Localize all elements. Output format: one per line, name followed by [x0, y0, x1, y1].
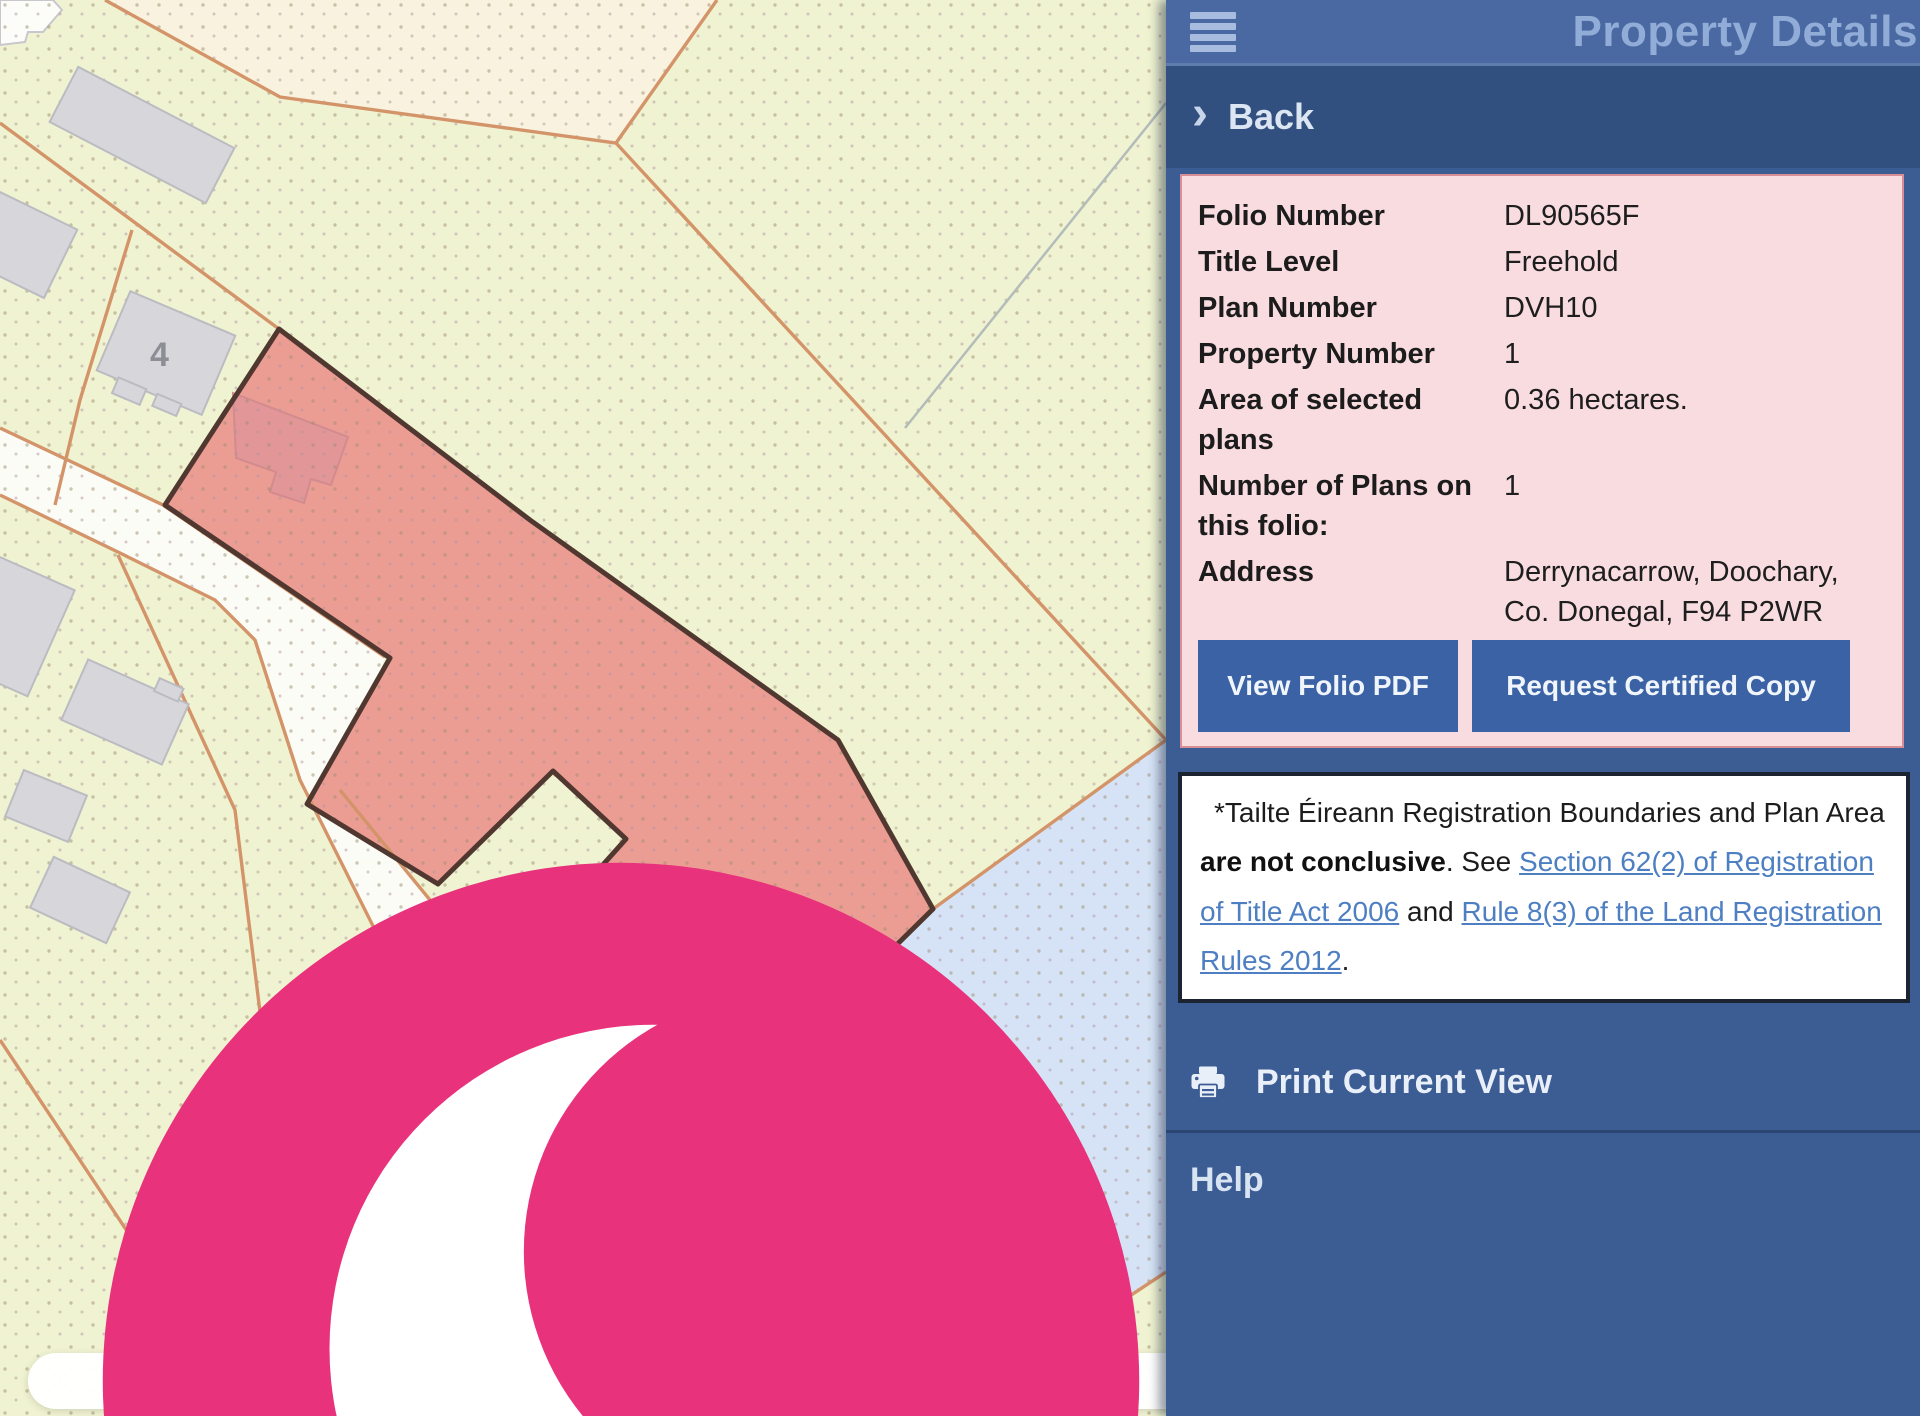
menu-icon[interactable]: [1190, 10, 1240, 54]
field-row-property-number: Property Number 1: [1198, 334, 1884, 374]
field-row-folio-number: Folio Number DL90565F: [1198, 196, 1884, 236]
field-value: 1: [1504, 334, 1884, 374]
field-label: Title Level: [1198, 242, 1504, 282]
field-label: Number of Plans on this folio:: [1198, 466, 1504, 546]
print-current-view-button[interactable]: Print Current View: [1166, 1035, 1920, 1133]
page-title: Property Details: [1573, 7, 1918, 57]
field-row-area: Area of selected plans 0.36 hectares.: [1198, 380, 1884, 460]
property-details-sidebar: Property Details › Back Folio Number DL9…: [1166, 0, 1920, 1416]
field-row-plan-number: Plan Number DVH10: [1198, 288, 1884, 328]
globe-icon: [38, 673, 1204, 1416]
print-current-view-label: Print Current View: [1256, 1063, 1552, 1102]
sidebar-header: Property Details: [1166, 0, 1920, 66]
field-value: 1: [1504, 466, 1884, 546]
field-value: DVH10: [1504, 288, 1884, 328]
field-value: 0.36 hectares.: [1504, 380, 1884, 460]
map-area[interactable]: 4 findqo.ie – Irish Property Platform: [0, 0, 1166, 1416]
help-button[interactable]: Help: [1166, 1133, 1920, 1200]
property-info-panel: Folio Number DL90565F Title Level Freeho…: [1180, 174, 1904, 748]
field-value: DL90565F: [1504, 196, 1884, 236]
field-value: Derrynacarrow, Doochary, Co. Donegal, F9…: [1504, 552, 1884, 632]
printer-icon: [1190, 1066, 1226, 1100]
field-row-title-level: Title Level Freehold: [1198, 242, 1884, 282]
field-label: Area of selected plans: [1198, 380, 1504, 460]
help-label: Help: [1190, 1161, 1264, 1199]
field-label: Plan Number: [1198, 288, 1504, 328]
field-label: Property Number: [1198, 334, 1504, 374]
field-row-address: Address Derrynacarrow, Doochary, Co. Don…: [1198, 552, 1884, 632]
boundary-disclaimer-note: *Tailte Éireann Registration Boundaries …: [1178, 772, 1910, 1003]
field-row-plan-count: Number of Plans on this folio: 1: [1198, 466, 1884, 546]
back-label: Back: [1228, 96, 1314, 138]
panel-button-row: View Folio PDF Request Certified Copy: [1198, 640, 1884, 732]
view-folio-pdf-button[interactable]: View Folio PDF: [1198, 640, 1458, 732]
field-label: Address: [1198, 552, 1504, 632]
request-certified-copy-button[interactable]: Request Certified Copy: [1472, 640, 1850, 732]
field-value: Freehold: [1504, 242, 1884, 282]
watermark-pill: findqo.ie – Irish Property Platform: [28, 1353, 1356, 1409]
building-number-label: 4: [150, 336, 169, 374]
chevron-right-icon: ›: [1192, 90, 1208, 138]
back-button[interactable]: › Back: [1166, 66, 1920, 168]
field-label: Folio Number: [1198, 196, 1504, 236]
